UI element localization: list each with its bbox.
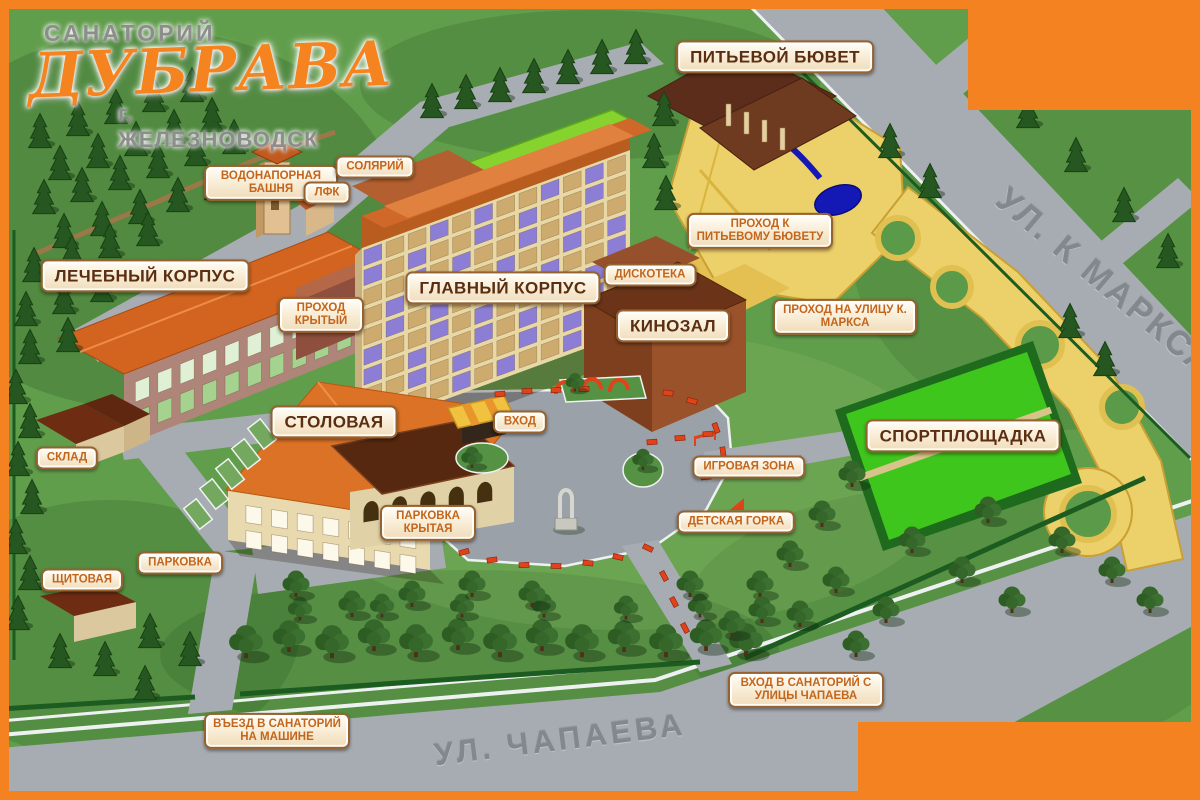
site-map-scene [0, 0, 1200, 800]
label-parkovka-krytaya: ПАРКОВКА КРЫТАЯ [380, 505, 476, 541]
label-parkovka: ПАРКОВКА [137, 551, 223, 574]
label-shchitovaya: ЩИТОВАЯ [41, 568, 123, 591]
label-kinozal: КИНОЗАЛ [616, 309, 730, 342]
label-solyariy: СОЛЯРИЙ [335, 155, 414, 178]
label-vhod: ВХОД [493, 410, 547, 433]
label-stolovaya: СТОЛОВАЯ [271, 405, 398, 438]
label-glavny-korpus: ГЛАВНЫЙ КОРПУС [405, 271, 600, 304]
label-pitevoy-byuvet: ПИТЬЕВОЙ БЮВЕТ [676, 40, 874, 73]
label-vyezd: ВЪЕЗД В САНАТОРИЙ НА МАШИНЕ [204, 713, 350, 749]
label-detskaya-gorka: ДЕТСКАЯ ГОРКА [677, 510, 795, 533]
label-lfk: ЛФК [304, 181, 351, 204]
label-lechebny-korpus: ЛЕЧЕБНЫЙ КОРПУС [41, 259, 250, 292]
label-prohod-kryty: ПРОХОД КРЫТЫЙ [278, 297, 364, 333]
label-sklad: СКЛАД [36, 446, 98, 469]
label-sportploshchadka: СПОРТПЛОЩАДКА [866, 419, 1061, 452]
sanatorium-site-map: САНАТОРИЙ ДУБРАВА г. ЖЕЛЕЗНОВОДСК УЛ. К … [0, 0, 1200, 800]
label-prohod-k-byuvetu: ПРОХОД К ПИТЬЕВОМУ БЮВЕТУ [687, 213, 833, 249]
label-diskoteka: ДИСКОТЕКА [604, 263, 697, 286]
label-igrovaya-zona: ИГРОВАЯ ЗОНА [692, 455, 805, 478]
label-prohod-na-marksa: ПРОХОД НА УЛИЦУ К. МАРКСА [773, 299, 917, 335]
label-vhod-s-chapaeva: ВХОД В САНАТОРИЙ С УЛИЦЫ ЧАПАЕВА [728, 672, 884, 708]
